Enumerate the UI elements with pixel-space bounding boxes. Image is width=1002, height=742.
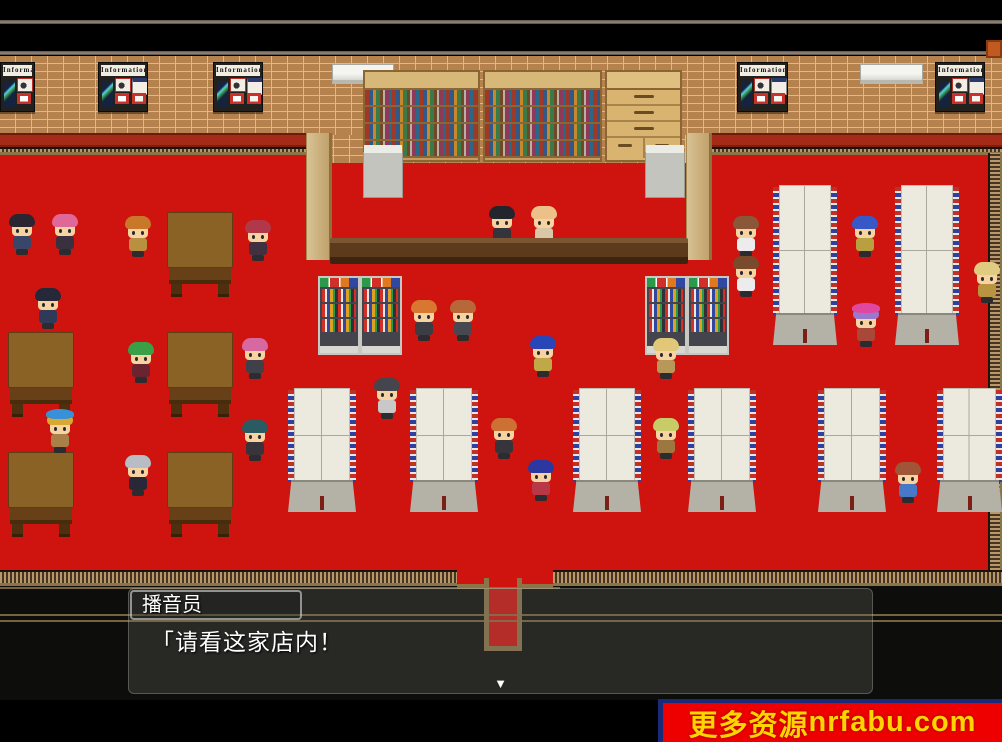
- npc-hair: [852, 216, 878, 229]
- bookshelf-top: [365, 72, 478, 90]
- npc-character[interactable]: [123, 216, 153, 260]
- rack-panel: [579, 388, 635, 482]
- npc-eyes: [457, 315, 460, 319]
- information-posters: [101, 78, 145, 109]
- poster-icon: [115, 93, 129, 104]
- store-shelf: [687, 276, 729, 355]
- rack-panel: [901, 185, 953, 315]
- npc-hair: [128, 342, 154, 355]
- npc-legs: [859, 251, 871, 257]
- npc-legs: [981, 297, 993, 303]
- rack-items-strip: [750, 390, 756, 482]
- cabinet-drawer: [607, 138, 645, 158]
- continue-arrow-icon[interactable]: ▼: [494, 677, 507, 690]
- table-top: [8, 452, 74, 508]
- npc-legs: [132, 251, 144, 257]
- poster-icon: [969, 93, 983, 104]
- npc-hair: [35, 288, 61, 301]
- npc-hair: [974, 262, 1000, 275]
- watermark-domain: nrfabu.com: [809, 706, 977, 739]
- npc-eyes: [16, 229, 19, 233]
- table-top: [167, 332, 233, 388]
- npc-eyes: [860, 321, 863, 325]
- poster-icon: [217, 81, 228, 107]
- information-board-title: Information: [3, 65, 32, 76]
- poster-icon: [17, 78, 33, 92]
- cabinet-drawer: [607, 106, 680, 122]
- information-posters: [216, 78, 260, 109]
- shop-counter: [330, 238, 688, 264]
- npc-eyes: [740, 231, 743, 235]
- speaker-name: 播音员: [142, 594, 202, 616]
- information-board: Information: [213, 62, 263, 112]
- poster-icon: [247, 93, 261, 104]
- shelf-products: [691, 319, 725, 332]
- shelf-products: [649, 319, 683, 332]
- wooden-table: [167, 452, 233, 538]
- game-screen: Information Information Information Info…: [0, 0, 1002, 742]
- wooden-table: [8, 332, 74, 418]
- npc-body: [495, 440, 513, 453]
- rack-items-strip: [953, 187, 959, 315]
- table-legs: [171, 284, 229, 297]
- npc-hair: [653, 418, 679, 431]
- npc-legs: [249, 455, 261, 461]
- npc-eyes: [981, 277, 984, 281]
- npc-body: [978, 284, 996, 297]
- wooden-table: [167, 332, 233, 418]
- npc-hair: [52, 214, 78, 227]
- npc-character[interactable]: [972, 262, 1002, 306]
- cabinet-drawer: [607, 122, 680, 138]
- npc-legs: [860, 341, 872, 347]
- table-legs: [171, 404, 229, 417]
- display-rack: [688, 388, 756, 512]
- table-leg: [218, 284, 229, 297]
- npc-hair: [125, 216, 151, 229]
- npc-eyes: [498, 433, 501, 437]
- shelf-products: [364, 304, 398, 317]
- store-shelf: [360, 276, 402, 355]
- npc-hair: [489, 206, 515, 219]
- rack-panel: [294, 388, 350, 482]
- npc-legs: [42, 323, 54, 329]
- npc-hair: [242, 338, 268, 351]
- npc-character[interactable]: [528, 336, 558, 380]
- book-row: [365, 124, 478, 141]
- rack-items-strip: [350, 390, 356, 482]
- crate: [986, 40, 1002, 58]
- counter-register: [645, 152, 685, 198]
- rack-base: [573, 480, 641, 512]
- poster-icon: [132, 93, 146, 104]
- npc-body: [737, 278, 755, 291]
- npc-character[interactable]: [448, 300, 478, 344]
- npc-character[interactable]: [240, 338, 270, 382]
- shelf-products: [649, 304, 683, 317]
- npc-character[interactable]: [651, 418, 681, 462]
- npc-legs: [249, 373, 261, 379]
- npc-legs: [740, 291, 752, 297]
- carpet-border-bottom: [553, 570, 1002, 586]
- npc-body: [378, 400, 396, 413]
- carpet-border-bottom: [0, 570, 457, 586]
- rack-base: [688, 480, 756, 512]
- npc-eyes: [902, 477, 905, 481]
- npc-legs: [498, 453, 510, 459]
- display-rack: [895, 185, 959, 345]
- rack-base: [937, 480, 1002, 512]
- counter-register: [363, 152, 403, 198]
- npc-body: [51, 434, 69, 447]
- npc-eyes: [132, 231, 135, 235]
- poster-icon: [102, 81, 113, 107]
- poster-icon: [952, 78, 968, 92]
- npc-character[interactable]: [731, 256, 761, 300]
- display-rack: [410, 388, 478, 512]
- shelf-products: [322, 304, 356, 317]
- rack-base: [773, 313, 837, 345]
- shelf-products: [322, 319, 356, 332]
- rack-panel: [416, 388, 472, 482]
- table-leg: [12, 404, 23, 417]
- npc-body: [899, 484, 917, 497]
- rack-items-strip: [635, 390, 641, 482]
- npc-character[interactable]: [850, 216, 880, 260]
- poster-icon: [17, 93, 31, 104]
- display-rack: [937, 388, 1002, 512]
- wooden-table: [167, 212, 233, 298]
- npc-hair: [733, 216, 759, 229]
- npc-eyes: [535, 475, 538, 479]
- rack-panel: [943, 388, 996, 482]
- shelf-products: [364, 289, 398, 302]
- npc-character[interactable]: [123, 455, 153, 499]
- cabinet-drawer: [607, 90, 680, 106]
- wall-pillar: [306, 133, 332, 260]
- npc-character[interactable]: [489, 418, 519, 462]
- table-top: [167, 452, 233, 508]
- rack-items-strip: [831, 187, 837, 315]
- npc-eyes: [418, 315, 421, 319]
- table-leg: [218, 524, 229, 537]
- npc-body: [56, 236, 74, 249]
- npc-hair: [528, 460, 554, 473]
- shelf-sign: [647, 278, 685, 287]
- npc-hair: [530, 336, 556, 349]
- npc-body: [129, 477, 147, 490]
- book-row: [365, 107, 478, 124]
- information-board: Information: [0, 62, 35, 112]
- poster-icon: [34, 78, 35, 95]
- npc-body: [856, 238, 874, 251]
- npc-eyes: [740, 271, 743, 275]
- table-apron: [169, 388, 231, 404]
- npc-body: [415, 322, 433, 335]
- information-board: Information: [737, 62, 788, 112]
- table-apron: [10, 508, 72, 524]
- npc-hair: [242, 420, 268, 433]
- display-rack: [818, 388, 886, 512]
- npc-hair: [491, 418, 517, 431]
- npc-legs: [252, 255, 264, 261]
- npc-body: [532, 482, 550, 495]
- rack-panel: [824, 388, 880, 482]
- npc-eyes: [42, 303, 45, 307]
- table-apron: [10, 388, 72, 404]
- information-board: Information: [98, 62, 148, 112]
- npc-legs: [537, 371, 549, 377]
- npc-legs: [381, 413, 393, 419]
- air-conditioner: [860, 64, 923, 84]
- poster-icon: [230, 93, 244, 104]
- shelf-products: [691, 289, 725, 302]
- poster-icon: [34, 93, 35, 104]
- shelf-base: [320, 346, 358, 353]
- rack-items-strip: [880, 390, 886, 482]
- dialogue-name-box: 播音员: [130, 590, 302, 620]
- table-top: [167, 212, 233, 268]
- npc-eyes: [249, 435, 252, 439]
- npc-eyes: [537, 351, 540, 355]
- table-legs: [12, 524, 70, 537]
- npc-eyes: [660, 433, 663, 437]
- npc-body: [132, 364, 150, 377]
- npc-eyes: [496, 221, 499, 225]
- npc-character[interactable]: [526, 460, 556, 504]
- bookshelf: [483, 70, 602, 162]
- dialogue-text: 「请看这家店内！: [151, 623, 343, 657]
- npc-body: [246, 360, 264, 373]
- npc-hair: [245, 220, 271, 233]
- npc-hair: [895, 462, 921, 475]
- npc-character[interactable]: [45, 412, 75, 456]
- watermark-text-cn: 更多资源: [689, 702, 809, 742]
- bookshelf-top: [485, 72, 600, 90]
- npc-eyes: [132, 470, 135, 474]
- cabinet-top: [607, 72, 680, 90]
- npc-body: [129, 238, 147, 251]
- book-row: [485, 141, 600, 158]
- npc-legs: [902, 497, 914, 503]
- npc-body: [657, 360, 675, 373]
- npc-eyes: [54, 427, 57, 431]
- shelf-products: [649, 289, 683, 302]
- npc-character[interactable]: [7, 214, 37, 258]
- information-board-title: Information: [740, 65, 785, 76]
- npc-legs: [132, 490, 144, 496]
- poster-icon: [4, 81, 15, 107]
- display-rack: [773, 185, 837, 345]
- rack-panel: [694, 388, 750, 482]
- information-posters: [938, 78, 982, 109]
- poster-icon: [952, 93, 966, 104]
- npc-hair: [653, 338, 679, 351]
- shelf-products: [322, 289, 356, 302]
- npc-legs: [135, 377, 147, 383]
- npc-hair: [450, 300, 476, 313]
- npc-legs: [660, 453, 672, 459]
- information-board-title: Information: [101, 65, 145, 76]
- npc-body: [737, 238, 755, 251]
- npc-body: [657, 440, 675, 453]
- npc-body: [39, 310, 57, 323]
- npc-eyes: [660, 353, 663, 357]
- information-board-title: Information: [216, 65, 260, 76]
- shelf-base: [689, 346, 727, 353]
- npc-hair: [9, 214, 35, 227]
- rack-base: [895, 313, 959, 345]
- table-legs: [171, 524, 229, 537]
- information-board-title: Information: [938, 65, 982, 76]
- table-leg: [12, 524, 23, 537]
- rack-base: [410, 480, 478, 512]
- poster-icon: [754, 78, 770, 92]
- shelf-sign: [320, 278, 358, 287]
- npc-eyes: [252, 235, 255, 239]
- npc-character[interactable]: [372, 378, 402, 422]
- npc-body: [13, 236, 31, 249]
- watermark-link[interactable]: 更多资源nrfabu.com: [658, 699, 1002, 742]
- npc-hat: [852, 303, 880, 313]
- shelf-sign: [689, 278, 727, 287]
- poster-icon: [939, 81, 950, 107]
- npc-character[interactable]: [243, 220, 273, 264]
- npc-hair: [733, 256, 759, 269]
- rack-items-strip: [472, 390, 478, 482]
- store-shelf: [318, 276, 360, 355]
- table-top: [8, 332, 74, 388]
- npc-body: [454, 322, 472, 335]
- npc-legs: [457, 335, 469, 341]
- rack-base: [818, 480, 886, 512]
- book-row: [485, 107, 600, 124]
- npc-legs: [59, 249, 71, 255]
- npc-character[interactable]: [893, 462, 923, 506]
- table-apron: [169, 268, 231, 284]
- book-row: [485, 124, 600, 141]
- npc-character[interactable]: [409, 300, 439, 344]
- npc-eyes: [249, 353, 252, 357]
- npc-character[interactable]: [731, 216, 761, 260]
- npc-character[interactable]: [851, 306, 881, 350]
- poster-icon: [115, 78, 131, 92]
- information-posters: [740, 78, 785, 109]
- npc-hair: [411, 300, 437, 313]
- shelf-sign: [362, 278, 400, 287]
- table-leg: [59, 524, 70, 537]
- npc-character[interactable]: [50, 214, 80, 258]
- display-rack: [573, 388, 641, 512]
- table-apron: [169, 508, 231, 524]
- npc-eyes: [59, 229, 62, 233]
- display-rack: [288, 388, 356, 512]
- rack-items-strip: [996, 390, 1002, 482]
- npc-legs: [54, 447, 66, 453]
- poster-icon: [754, 93, 768, 104]
- npc-hat: [46, 409, 74, 419]
- information-posters: [3, 78, 32, 109]
- information-board: Information: [935, 62, 985, 112]
- npc-character[interactable]: [240, 420, 270, 464]
- npc-eyes: [859, 231, 862, 235]
- npc-character[interactable]: [126, 342, 156, 386]
- npc-hair: [531, 206, 557, 219]
- table-leg: [218, 404, 229, 417]
- npc-hair: [374, 378, 400, 391]
- npc-legs: [535, 495, 547, 501]
- npc-hair: [125, 455, 151, 468]
- npc-eyes: [135, 357, 138, 361]
- npc-body: [857, 328, 875, 341]
- npc-legs: [16, 249, 28, 255]
- rack-panel: [779, 185, 831, 315]
- npc-legs: [660, 373, 672, 379]
- shelf-products: [691, 304, 725, 317]
- npc-eyes: [538, 221, 541, 225]
- table-leg: [171, 404, 182, 417]
- book-row: [365, 90, 478, 107]
- entrance-carpet: [457, 570, 553, 584]
- wall-pillar: [686, 133, 712, 260]
- shelf-products: [364, 319, 398, 332]
- npc-character[interactable]: [33, 288, 63, 332]
- rack-base: [288, 480, 356, 512]
- npc-body: [249, 242, 267, 255]
- shelf-base: [362, 346, 400, 353]
- npc-legs: [418, 335, 430, 341]
- table-leg: [171, 524, 182, 537]
- poster-icon: [771, 93, 785, 104]
- poster-icon: [230, 78, 246, 92]
- npc-character[interactable]: [651, 338, 681, 382]
- wooden-table: [8, 452, 74, 538]
- npc-body: [246, 442, 264, 455]
- npc-body: [534, 358, 552, 371]
- npc-eyes: [381, 393, 384, 397]
- poster-icon: [741, 81, 752, 107]
- book-row: [485, 90, 600, 107]
- table-leg: [171, 284, 182, 297]
